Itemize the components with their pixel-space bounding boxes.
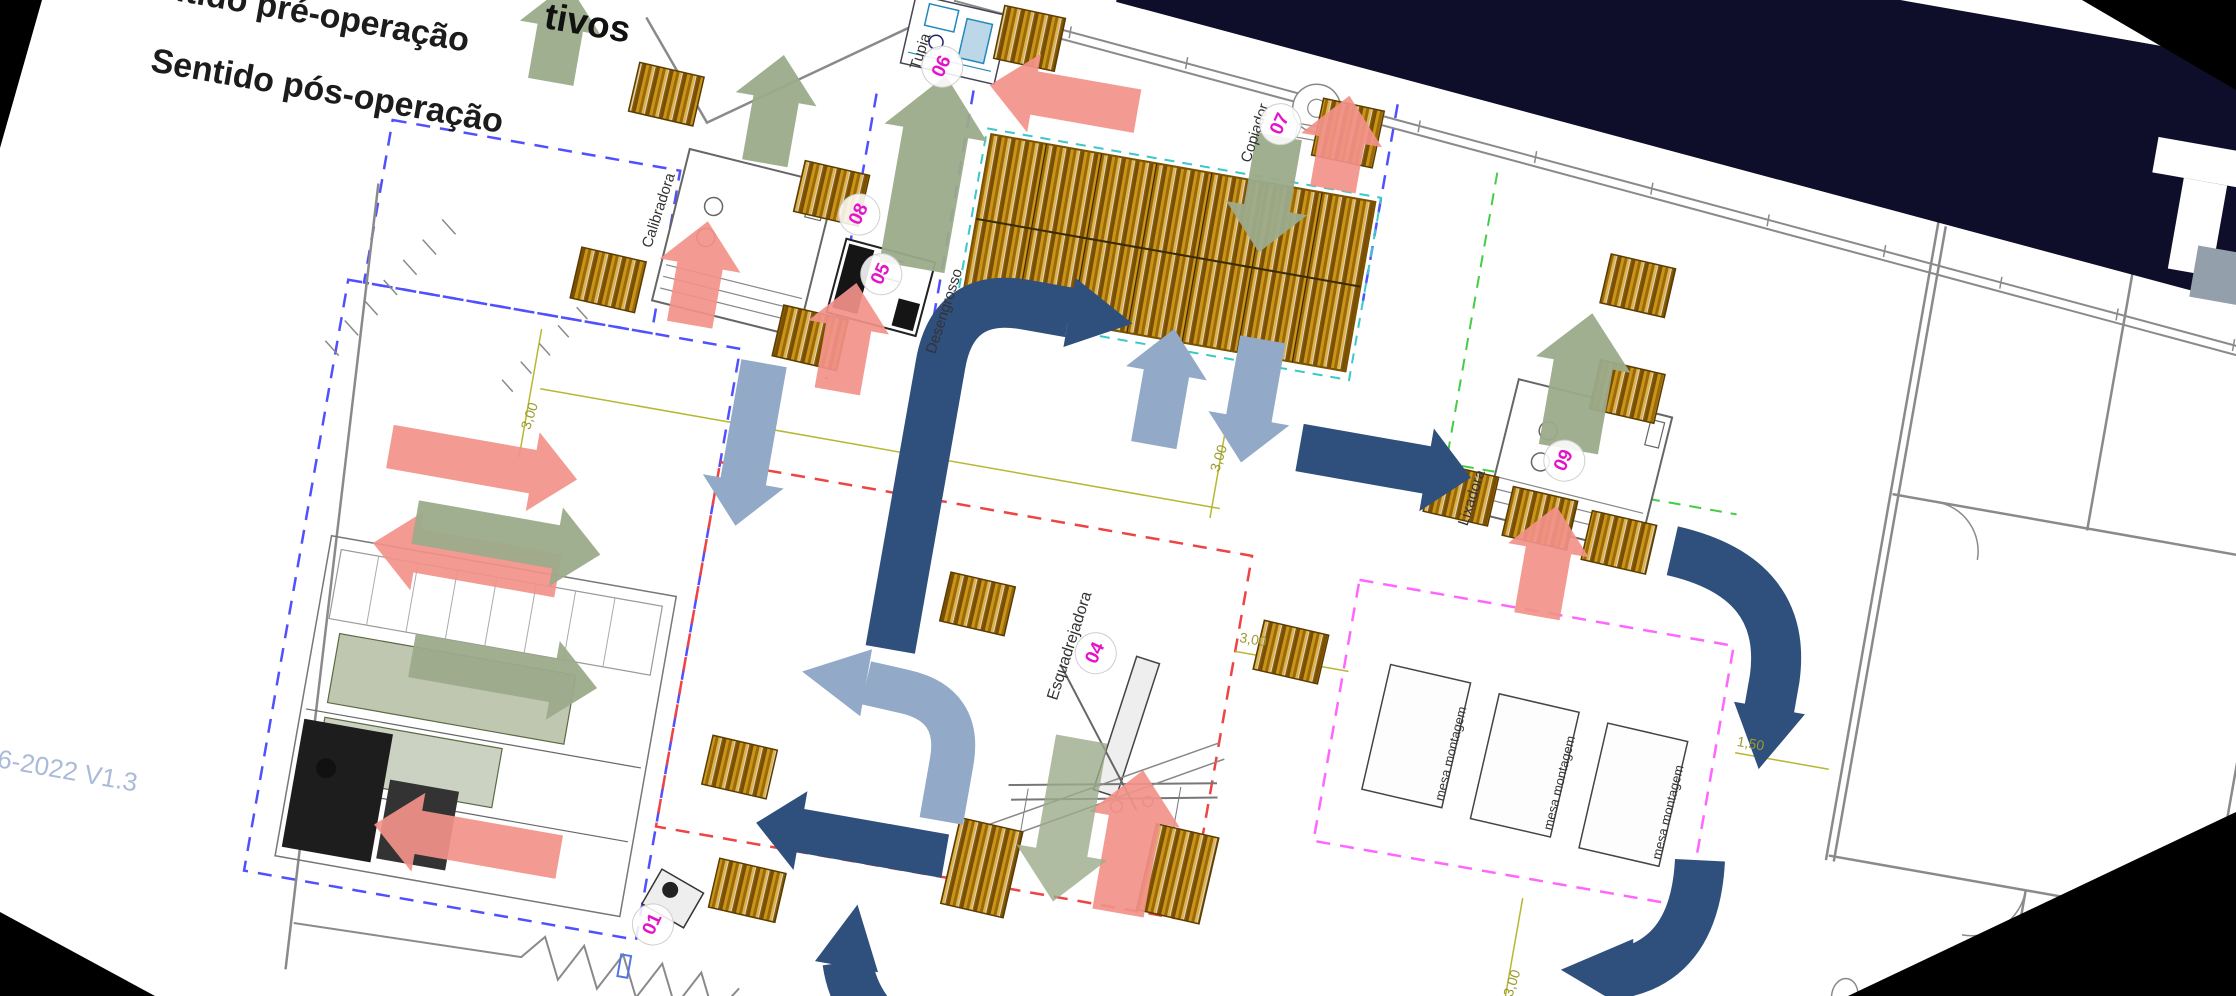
sink [2053,941,2078,966]
door-arc-1 [1962,881,2026,945]
wood-stacks [470,0,1726,996]
logo-gray-square [2190,246,2236,306]
steel-arrow-curve-head [797,638,873,716]
factory-floor-plan [0,0,2236,996]
slide-page: tivos Sentido pré-operação Sentido pós-o… [0,0,2236,996]
door-arc-2 [1929,502,1987,560]
photographed-slide: tivos Sentido pré-operação Sentido pós-o… [0,0,2236,996]
toilet-1 [1829,977,1861,996]
navy-curve-down [1648,551,1793,710]
navy-curve-bottom-right [1624,851,1702,983]
steel-arrow-curve [845,683,963,821]
hatched-wall-left [318,220,464,356]
shower [2108,942,2178,996]
zone-green-line-v [1445,173,1498,473]
assembly-tables [1358,663,1692,867]
